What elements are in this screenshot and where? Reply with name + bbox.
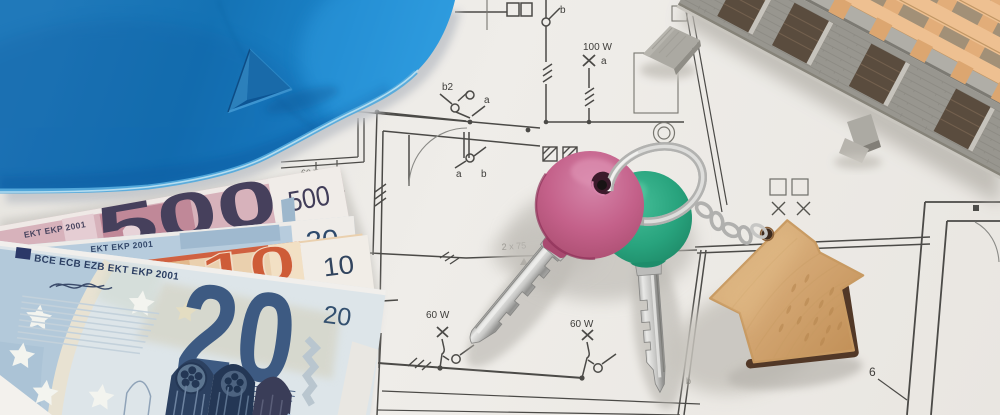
svg-text:60 W: 60 W <box>570 319 594 330</box>
svg-text:a: a <box>601 56 607 67</box>
svg-text:a: a <box>456 169 462 180</box>
svg-text:b2: b2 <box>442 82 454 93</box>
svg-text:a: a <box>484 95 490 106</box>
svg-text:20: 20 <box>322 301 353 332</box>
svg-text:10: 10 <box>321 249 355 283</box>
svg-text:60 W: 60 W <box>426 310 450 321</box>
svg-text:b: b <box>481 169 487 180</box>
svg-text:b: b <box>560 5 566 16</box>
svg-text:6: 6 <box>869 365 876 379</box>
svg-text:100 W: 100 W <box>583 42 612 53</box>
